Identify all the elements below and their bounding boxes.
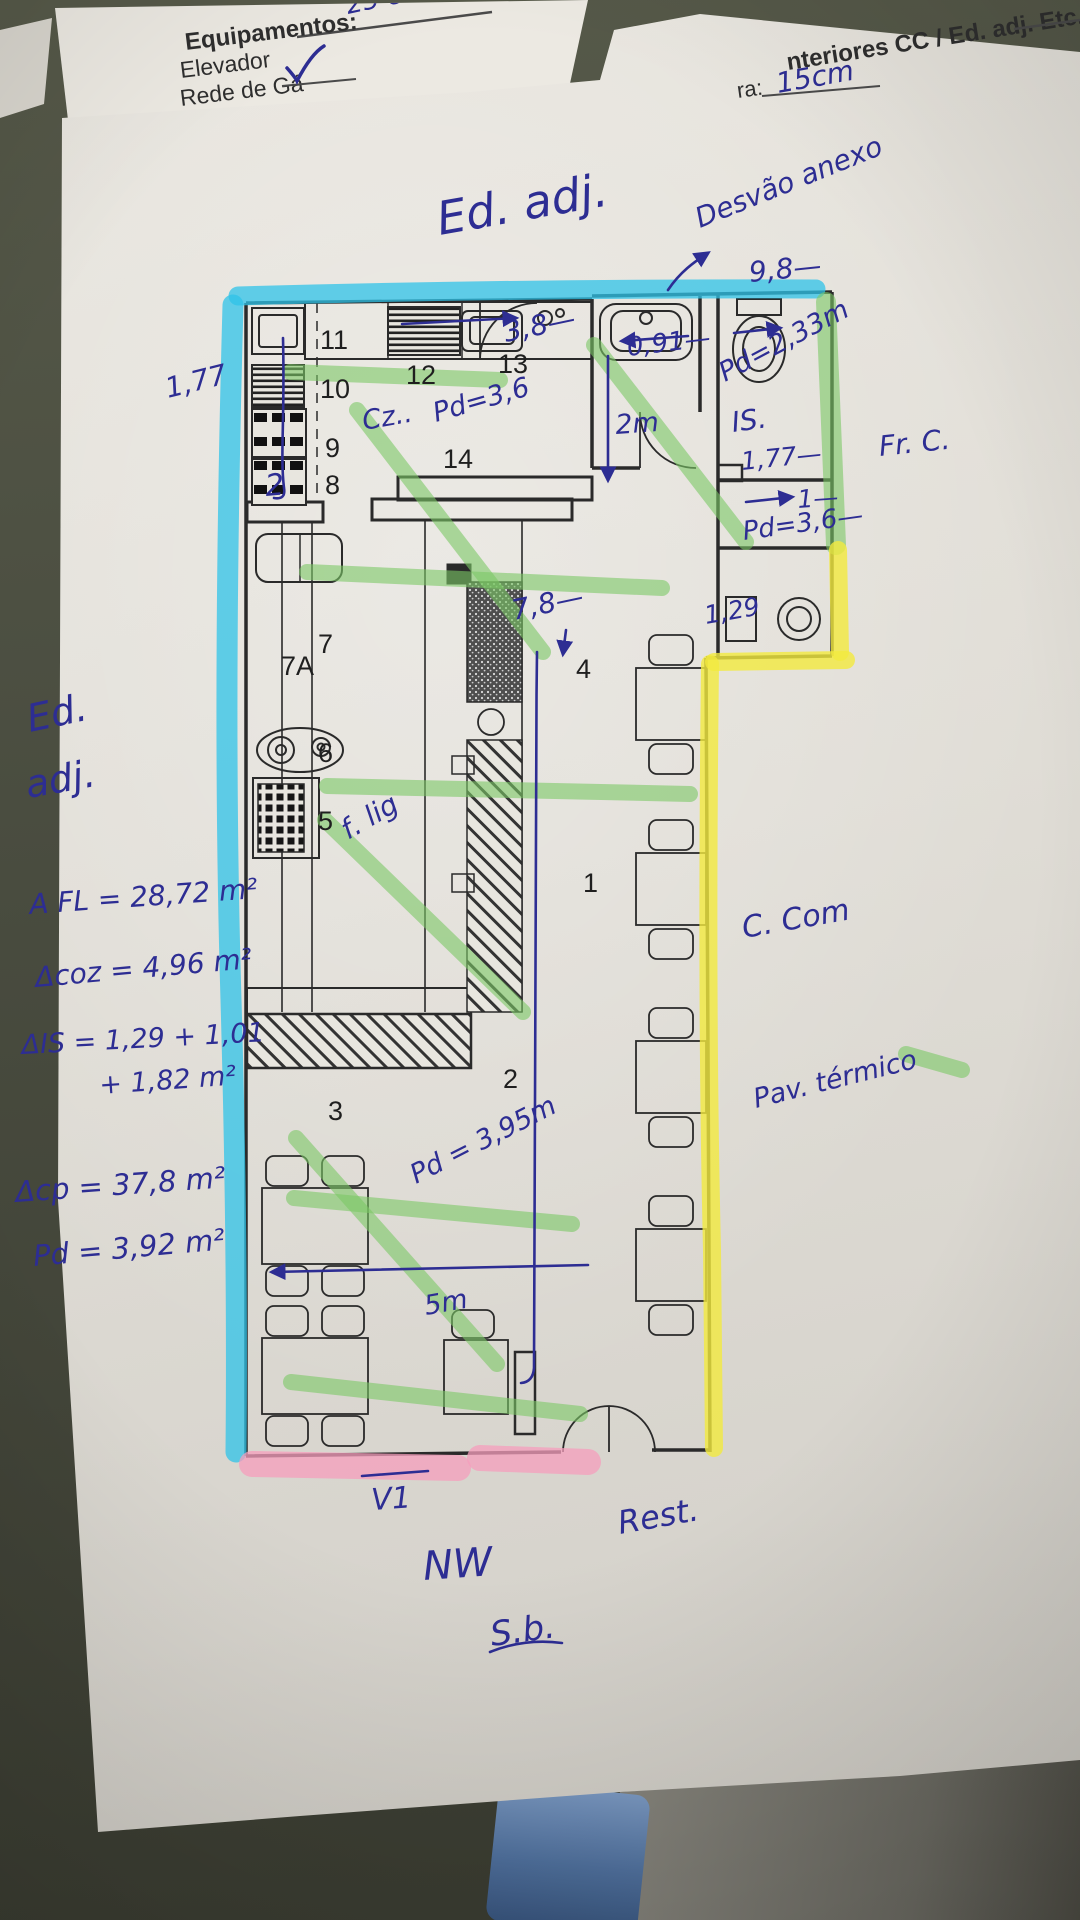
room-14: 14 bbox=[443, 444, 473, 474]
room-numbers: 11 10 9 8 12 13 14 7 7A 6 5 4 1 2 3 bbox=[281, 325, 598, 1126]
bidet bbox=[778, 598, 820, 640]
room-4: 4 bbox=[576, 654, 591, 684]
label-v1: V1 bbox=[370, 1480, 412, 1518]
label-desvao-anexo: Desvão anexo bbox=[690, 129, 887, 234]
toilet-tank bbox=[737, 299, 781, 315]
room-3: 3 bbox=[328, 1096, 343, 1126]
pen-scribble-2: 2 bbox=[264, 467, 286, 504]
label-f-lig: f. lig bbox=[335, 787, 404, 846]
arrow-7-8 bbox=[563, 630, 566, 654]
room-10: 10 bbox=[320, 374, 350, 404]
formula-pd-392: Pd = 3,92 m² bbox=[32, 1222, 227, 1273]
room-11: 11 bbox=[320, 325, 348, 355]
formula-area-coz: Δcoz = 4,96 m² bbox=[32, 942, 253, 994]
formula-area-is-2: + 1,82 m² bbox=[98, 1060, 237, 1100]
stove-1 bbox=[252, 409, 306, 457]
label-fr-c: Fr. C. bbox=[877, 423, 951, 463]
dim-pd-395: Pd = 3,95m bbox=[405, 1090, 561, 1190]
form-heading-topright: nteriores CC / Ed. adj. Etc.: ra: 15cm bbox=[735, 1, 1080, 103]
room-7: 7 bbox=[318, 629, 333, 659]
highlighter-pink bbox=[252, 1458, 588, 1468]
label-sb: S.b. bbox=[488, 1606, 558, 1655]
label-adj: adj. bbox=[22, 751, 99, 806]
room-5: 5 bbox=[318, 806, 333, 836]
formula-area-cp: Δcp = 37,8 m² bbox=[12, 1160, 227, 1209]
plan-drawing: nteriores CC / Ed. adj. Etc.: ra: 15cm bbox=[0, 0, 1080, 1920]
label-ed-adj-top: Ed. adj. bbox=[433, 163, 612, 246]
field-label: ra: bbox=[735, 75, 764, 103]
highlighter-yellow bbox=[708, 550, 846, 1448]
grill bbox=[388, 307, 460, 355]
label-is: IS. bbox=[729, 401, 768, 439]
arrow-1 bbox=[746, 497, 792, 502]
room-8: 8 bbox=[325, 470, 340, 500]
label-pav-termico: Pav. térmico bbox=[750, 1044, 920, 1115]
dim-2m: 2m bbox=[614, 407, 660, 441]
room-9: 9 bbox=[325, 433, 340, 463]
label-rest: Rest. bbox=[615, 1490, 702, 1542]
dim-1-77-left: 1,77 bbox=[162, 358, 231, 405]
label-c-com: C. Com bbox=[739, 893, 852, 946]
label-nw: NW bbox=[421, 1539, 495, 1590]
room-2: 2 bbox=[503, 1064, 518, 1094]
photo-of-floor-plan: 25 cm Equipamentos: Elevador Rede de Gá bbox=[0, 0, 1080, 1920]
dim-1-77-right: 1,77— bbox=[740, 439, 823, 476]
room-12: 12 bbox=[406, 360, 436, 390]
floor-plan: 11 10 9 8 12 13 14 7 7A 6 5 4 1 2 3 bbox=[227, 253, 962, 1652]
label-ed: Ed. bbox=[23, 685, 91, 741]
dim-line-dining bbox=[272, 1265, 588, 1272]
room-7a: 7A bbox=[281, 651, 314, 681]
room-1: 1 bbox=[583, 868, 598, 898]
label-cz: Cz.. bbox=[360, 398, 415, 437]
dining-tables-wall bbox=[636, 635, 706, 1335]
dim-1-29: 1,29 bbox=[702, 592, 762, 630]
room-6: 6 bbox=[318, 738, 333, 768]
